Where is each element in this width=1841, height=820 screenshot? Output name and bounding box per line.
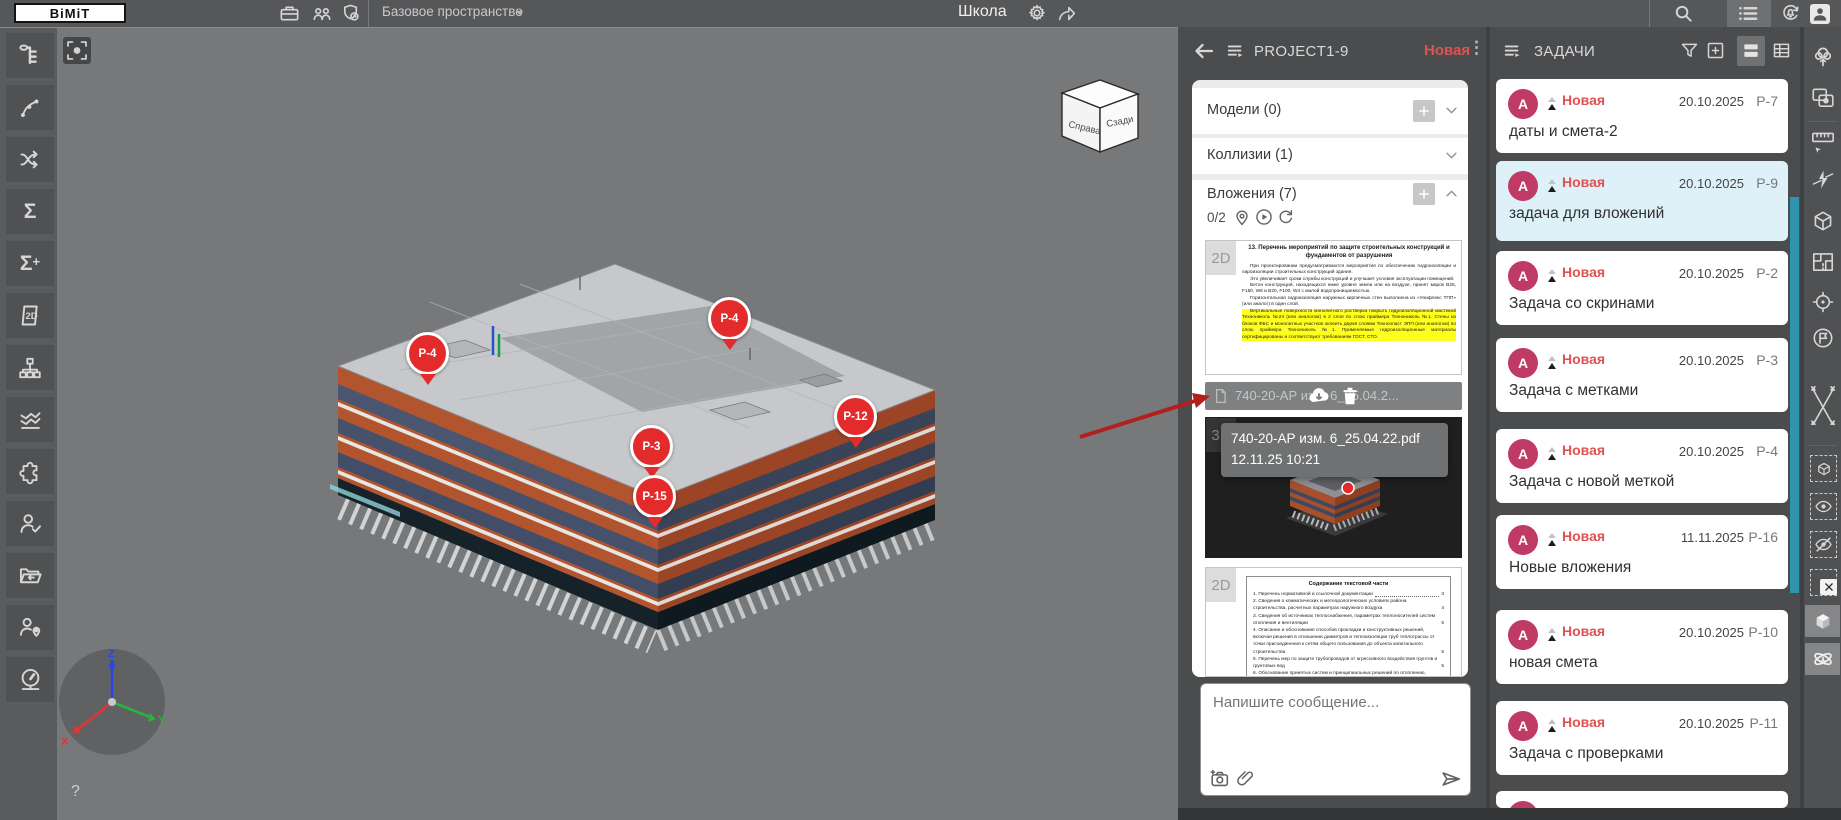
task-title: Новые вложения — [1509, 559, 1631, 577]
right-tool-strip — [1804, 27, 1841, 808]
task-date: 20.10.2025 — [1679, 625, 1744, 640]
task-card[interactable]: A Новая 20.10.2025 P-4 Задача с новой ме… — [1496, 429, 1788, 503]
chat-content-card: Модели (0) Коллизии (1) Вложения (7) — [1192, 80, 1468, 677]
status-badge: Новая — [1562, 264, 1605, 280]
refresh-icon[interactable] — [1276, 207, 1296, 232]
card-view-button[interactable] — [1737, 36, 1765, 66]
map-marker[interactable]: P-15 — [633, 475, 676, 518]
strip-divider — [1808, 445, 1837, 446]
task-title: Задача с новой меткой — [1509, 473, 1674, 491]
task-card[interactable]: A Новая 11.11.2025 P-16 Новые вложения — [1496, 515, 1788, 589]
attachment-2d-badge: 2D — [1206, 241, 1236, 275]
pin-filter-icon[interactable] — [1232, 207, 1252, 232]
task-id: P-2 — [1756, 265, 1778, 281]
task-title: задача для вложений — [1509, 205, 1664, 223]
map-marker[interactable]: P-3 — [630, 425, 673, 468]
file-tooltip: 740-20-АР изм. 6_25.04.22.pdf 12.11.25 1… — [1221, 423, 1448, 477]
task-title: новая смета — [1509, 654, 1598, 672]
topbar-divider-right — [1649, 0, 1650, 27]
locate-target-icon[interactable] — [1811, 290, 1835, 319]
flag-icon[interactable] — [1811, 326, 1835, 355]
status-badge: Новая — [1562, 92, 1605, 108]
document-page: 13. Перечень мероприятий по защите строи… — [1242, 245, 1456, 341]
task-date: 20.10.2025 — [1679, 266, 1744, 281]
attachment-file-row[interactable]: 740-20-АР изм. 6_25.04.2... — [1205, 382, 1462, 410]
viewport-3d[interactable]: P-4 P-4 P-3 P-12 P-15 Справа Сзади Z X Y… — [57, 28, 1178, 820]
attachment-2d-badge: 2D — [1206, 568, 1236, 602]
app-logo[interactable]: BiMiT — [14, 3, 126, 23]
task-card[interactable]: A Новая 20.10.2025 P-11 Задача с проверк… — [1496, 701, 1788, 775]
priority-icon — [1547, 267, 1557, 285]
delete-icon[interactable] — [1339, 384, 1361, 413]
user-check-icon[interactable] — [6, 501, 54, 546]
avatar: A — [1508, 89, 1538, 119]
task-date: 20.10.2025 — [1679, 94, 1744, 109]
environment-tree-icon[interactable] — [1811, 44, 1835, 75]
task-card[interactable]: A Новая 20.10.2025 P-7 даты и смета-2 — [1496, 79, 1788, 153]
navigation-cube[interactable]: Справа Сзади — [1057, 78, 1141, 158]
status-badge: Новая — [1562, 174, 1605, 190]
message-composer[interactable] — [1200, 683, 1471, 796]
task-title: даты и смета-2 — [1509, 123, 1618, 141]
task-date: 11.11.2025 — [1681, 530, 1744, 545]
map-marker[interactable]: P-4 — [406, 332, 449, 375]
shield-clock-icon[interactable] — [340, 2, 363, 25]
task-id: P-11 — [1749, 715, 1778, 731]
bell-sync-icon[interactable] — [1779, 2, 1802, 25]
avatar: A — [1508, 439, 1538, 469]
axis-gizmo[interactable]: Z X Y — [57, 647, 167, 757]
scrollbar-thumb[interactable] — [1790, 197, 1799, 593]
export-folder-icon[interactable] — [6, 553, 54, 598]
tooltip-timestamp: 12.11.25 10:21 — [1231, 452, 1320, 467]
section-box-icon[interactable] — [1810, 208, 1836, 239]
priority-icon — [1547, 177, 1557, 195]
avatar: A — [1508, 171, 1538, 201]
task-id: P-9 — [1756, 175, 1778, 191]
status-badge: Новая — [1562, 351, 1605, 367]
tasks-panel: ЗАДАЧИ A Новая 20.10.2025 P-7 даты и сме… — [1490, 27, 1800, 808]
attach-file-icon[interactable] — [1235, 767, 1256, 794]
clear-selection-icon[interactable] — [1810, 569, 1837, 596]
filter-icon[interactable] — [1679, 40, 1700, 66]
shaded-cube-button[interactable] — [1805, 605, 1840, 637]
map-marker[interactable]: P-4 — [708, 297, 751, 340]
page-title: Школа — [958, 3, 1007, 21]
task-card-selected[interactable]: A Новая 20.10.2025 P-9 задача для вложен… — [1496, 161, 1788, 241]
add-task-icon[interactable] — [1705, 40, 1726, 66]
list-menu-button[interactable] — [1727, 0, 1771, 27]
table-view-icon[interactable] — [1771, 40, 1792, 66]
task-id: P-4 — [1756, 443, 1778, 459]
isolate-box-icon[interactable] — [1810, 455, 1837, 482]
svg-text:Y: Y — [158, 714, 166, 726]
priority-icon — [1547, 531, 1557, 549]
capture-region-icon[interactable] — [1810, 85, 1836, 116]
task-card-partial[interactable]: A — [1496, 791, 1788, 808]
topbar-divider — [368, 0, 369, 27]
task-date: 20.10.2025 — [1679, 444, 1744, 459]
chat-panel-title: PROJECT1-9 — [1254, 43, 1349, 60]
floor-plan-icon[interactable] — [1810, 249, 1836, 280]
share-icon[interactable] — [1056, 2, 1079, 25]
tooltip-filename: 740-20-АР изм. 6_25.04.22.pdf — [1231, 431, 1420, 446]
task-id: P-7 — [1756, 93, 1778, 109]
attachment-doc-preview[interactable]: 2D 13. Перечень мероприятий по защите ст… — [1205, 240, 1462, 375]
section-models[interactable]: Модели (0) — [1192, 88, 1468, 134]
focus-selection-icon[interactable] — [63, 37, 91, 64]
avatar: A — [1508, 801, 1538, 808]
task-title: Задача со скринами — [1509, 295, 1654, 313]
priority-icon — [1547, 95, 1557, 113]
briefcase-icon[interactable] — [278, 2, 301, 25]
chat-status-badge: Новая — [1424, 42, 1470, 59]
bimit-app: BiMiT Базовое пространство Школа — [0, 0, 1841, 820]
hide-eye-icon[interactable] — [1810, 531, 1837, 558]
document-page: Содержание текстовой части 1. Перечень н… — [1246, 576, 1451, 676]
sum-icon[interactable]: Σ — [6, 189, 54, 234]
download-icon[interactable] — [1305, 383, 1333, 414]
window-bottom-strip — [1178, 808, 1841, 820]
plugins-icon[interactable] — [6, 449, 54, 494]
top-bar: BiMiT Базовое пространство Школа — [0, 0, 1841, 28]
connections-icon[interactable] — [6, 137, 54, 182]
task-title: Задача с проверками — [1509, 745, 1663, 763]
avatar: A — [1508, 620, 1538, 650]
avatar: A — [1508, 525, 1538, 555]
measure-points-icon[interactable] — [1810, 375, 1836, 440]
section-plane-icon[interactable] — [1811, 167, 1835, 198]
user-location-icon[interactable] — [6, 605, 54, 650]
chevron-down-icon[interactable] — [1444, 148, 1459, 168]
task-card[interactable]: A Новая 20.10.2025 P-3 Задача с метками — [1496, 338, 1788, 412]
svg-text:2D: 2D — [25, 311, 37, 322]
playlist-icon[interactable] — [1502, 40, 1524, 67]
task-title: Задача с метками — [1509, 382, 1638, 400]
user-icon[interactable] — [1810, 4, 1830, 24]
project-chat-panel: PROJECT1-9 Новая ⋮ Модели (0) Коллизии (… — [1178, 27, 1486, 808]
priority-icon — [1547, 626, 1557, 644]
orbit-button[interactable] — [1805, 643, 1840, 675]
add-attachment-button[interactable] — [1413, 183, 1435, 205]
status-badge: Новая — [1562, 528, 1605, 544]
ruler-icon[interactable] — [1810, 127, 1836, 162]
chevron-down-icon[interactable] — [513, 6, 536, 29]
task-card[interactable]: A Новая 20.10.2025 P-10 новая смета — [1496, 610, 1788, 684]
task-id: P-10 — [1748, 624, 1778, 640]
left-toolbar: Σ Σ+ 2D — [0, 28, 57, 820]
search-icon[interactable] — [1672, 2, 1695, 25]
kebab-menu-icon[interactable]: ⋮ — [1468, 38, 1485, 58]
task-id: P-3 — [1756, 352, 1778, 368]
sum-add-icon[interactable]: Σ+ — [6, 241, 54, 286]
avatar: A — [1508, 711, 1538, 741]
svg-text:X: X — [61, 736, 69, 748]
avatar: A — [1508, 348, 1538, 378]
nodes-icon[interactable] — [6, 85, 54, 130]
status-badge: Новая — [1562, 623, 1605, 639]
avatar: A — [1508, 261, 1538, 291]
structure-icon[interactable] — [6, 345, 54, 390]
sheet-2d-icon[interactable]: 2D — [6, 293, 54, 338]
charts-icon[interactable] — [6, 397, 54, 442]
status-badge: Новая — [1562, 714, 1605, 730]
task-date: 20.10.2025 — [1679, 176, 1744, 191]
add-model-button[interactable] — [1413, 100, 1435, 122]
chevron-down-icon[interactable] — [1444, 103, 1459, 123]
model-tree-icon[interactable] — [6, 33, 54, 78]
tasks-panel-title: ЗАДАЧИ — [1534, 43, 1595, 60]
attachment-doc-preview-2[interactable]: 2D Содержание текстовой части 1. Перечен… — [1205, 567, 1462, 677]
dashboard-icon[interactable] — [6, 657, 54, 702]
priority-icon — [1547, 717, 1557, 735]
section-collisions[interactable]: Коллизии (1) — [1192, 138, 1468, 174]
playlist-icon[interactable] — [1225, 40, 1247, 67]
task-date: 20.10.2025 — [1679, 353, 1744, 368]
camera-icon[interactable] — [1209, 768, 1231, 795]
strip-divider — [1808, 121, 1837, 122]
priority-icon — [1547, 445, 1557, 463]
team-icon[interactable] — [311, 2, 334, 25]
chevron-up-icon[interactable] — [1444, 186, 1459, 206]
message-input[interactable] — [1211, 692, 1455, 758]
svg-text:Z: Z — [108, 648, 115, 660]
task-card[interactable]: A Новая 20.10.2025 P-2 Задача со скринам… — [1496, 251, 1788, 325]
file-icon — [1212, 387, 1229, 410]
back-icon[interactable] — [1192, 39, 1216, 68]
building-model[interactable] — [280, 260, 980, 700]
priority-icon — [1547, 354, 1557, 372]
help-button[interactable]: ? — [71, 783, 80, 801]
status-badge: Новая — [1562, 442, 1605, 458]
send-icon[interactable] — [1439, 768, 1463, 795]
task-date: 20.10.2025 — [1679, 716, 1744, 731]
attachment-counter: 0/2 — [1207, 210, 1226, 225]
play-icon[interactable] — [1254, 207, 1274, 232]
section-attachments: Вложения (7) 0/2 2D 13. Перечень меропр — [1192, 180, 1468, 677]
show-eye-icon[interactable] — [1810, 493, 1837, 520]
gear-icon[interactable] — [1026, 2, 1049, 25]
map-marker[interactable]: P-12 — [834, 395, 877, 438]
task-id: P-16 — [1748, 529, 1778, 545]
